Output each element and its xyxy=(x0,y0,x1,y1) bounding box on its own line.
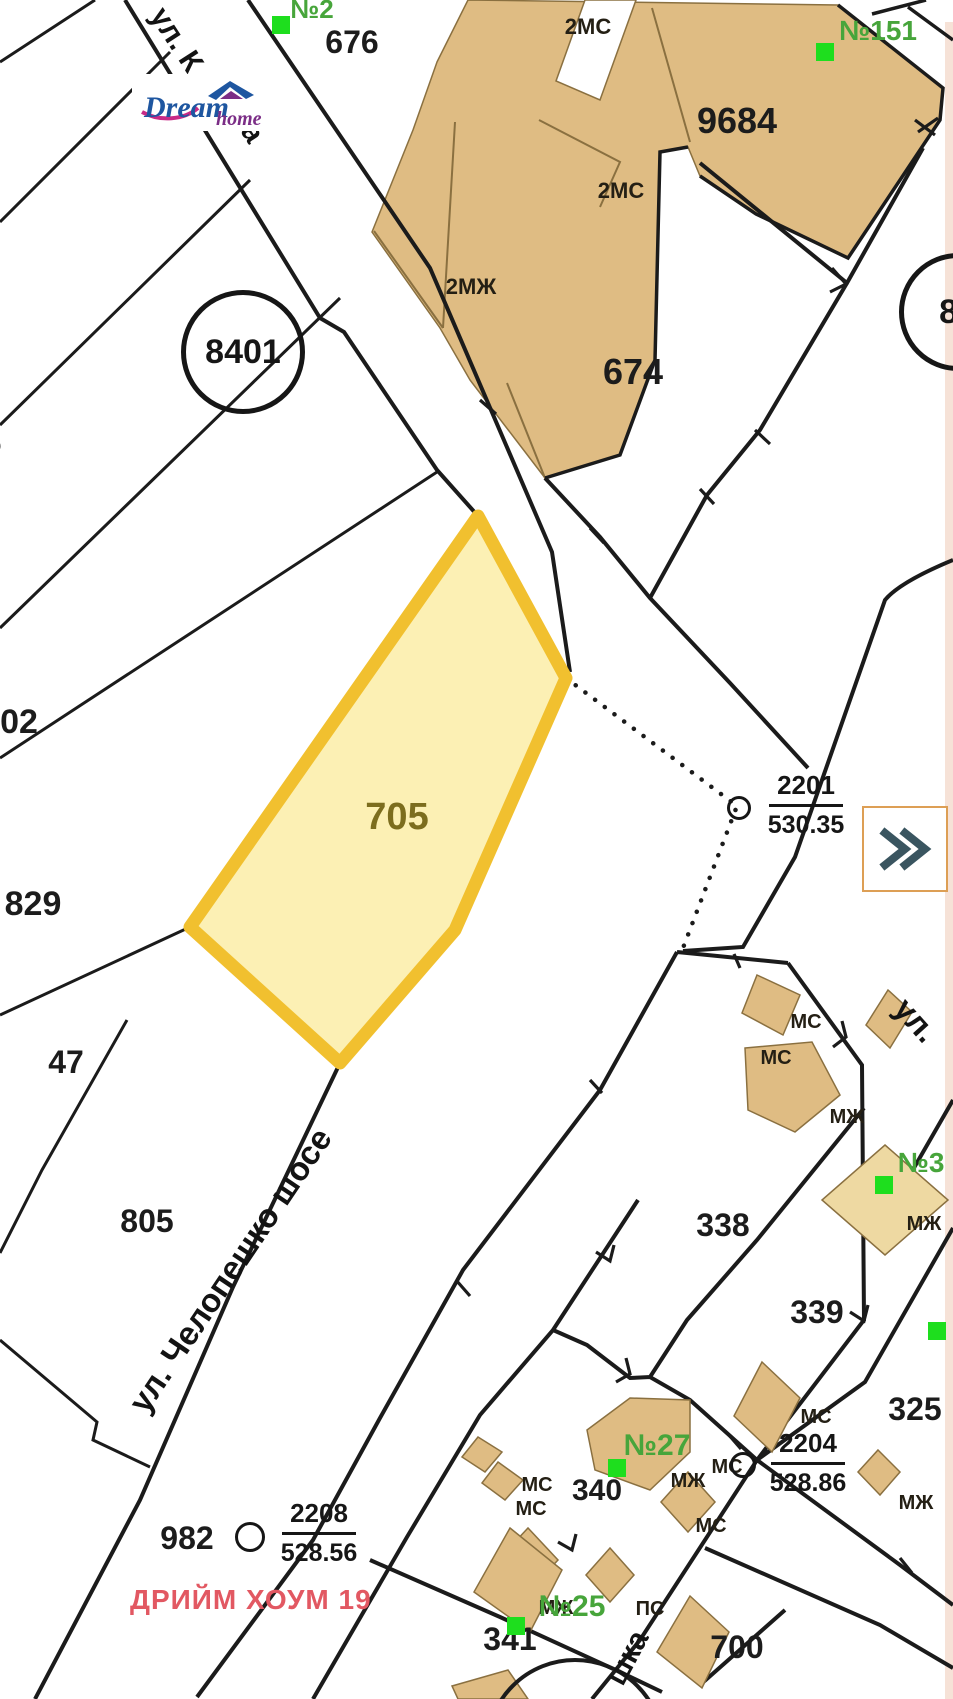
address-marker-square xyxy=(272,16,290,34)
parcel-number-label: 02 xyxy=(0,705,38,739)
address-marker-square xyxy=(875,1176,893,1194)
expand-map-button[interactable] xyxy=(862,806,948,892)
dream-home-logo-art: Dream home xyxy=(132,74,278,131)
circled-parcel-number: 8401 xyxy=(181,290,305,414)
parcel-number-label: 674 xyxy=(603,354,663,390)
survey-point-2208: 2208 528.56 xyxy=(260,1498,378,1568)
survey-point-number: 2208 xyxy=(282,1498,356,1535)
double-chevron-right-icon xyxy=(877,827,933,871)
survey-point-2204: 2204 528.86 xyxy=(744,1428,872,1498)
parcel-number-label: 829 xyxy=(5,887,62,921)
parcel-number-label: 805 xyxy=(120,1205,173,1237)
building-type-label: МС xyxy=(515,1499,546,1519)
survey-point-2201: 2201 530.35 xyxy=(741,770,871,840)
building-type-label: 2МЖ xyxy=(446,276,496,298)
parcel-number-label: 676 xyxy=(325,26,378,58)
building-type-label: ПС xyxy=(636,1599,665,1619)
parcel-number-label: 5 xyxy=(0,429,1,459)
address-marker-label: №151 xyxy=(839,17,917,45)
building-type-label: МЖ xyxy=(830,1107,865,1127)
survey-point-elevation: 530.35 xyxy=(741,807,871,840)
address-marker-label: №25 xyxy=(539,1592,606,1622)
parcel-number-label: 9684 xyxy=(697,103,777,139)
address-marker-label: №27 xyxy=(624,1431,691,1461)
building-type-label: МЖ xyxy=(899,1493,934,1513)
address-marker-square xyxy=(816,43,834,61)
survey-point-number: 2204 xyxy=(771,1428,845,1465)
building-type-label: МЖ xyxy=(671,1471,706,1491)
cadastral-map-viewer: 6769684674028294780533833932534034170098… xyxy=(0,0,953,1699)
parcel-number-label: 339 xyxy=(790,1296,843,1328)
logo-word-home: home xyxy=(216,108,262,130)
building-type-label: МС xyxy=(800,1407,831,1427)
agency-watermark: ДРИЙМ ХОУМ 19 xyxy=(130,1584,372,1616)
parcel-number-label: 325 xyxy=(888,1393,941,1425)
parcel-number-label: 47 xyxy=(48,1046,84,1078)
building-type-label: МС xyxy=(695,1516,726,1536)
address-marker-label: №3 xyxy=(898,1149,945,1177)
buildings-bottom-right xyxy=(452,975,912,1699)
address-marker-label: №2 xyxy=(290,0,333,22)
parcel-number-label: 338 xyxy=(696,1209,749,1241)
parcel-number-label: 340 xyxy=(572,1476,622,1506)
address-marker-square xyxy=(507,1617,525,1635)
building-type-label: 2МС xyxy=(598,180,644,202)
building-type-label: МЖ xyxy=(907,1214,942,1234)
address-marker-square xyxy=(928,1322,946,1340)
building-type-label: МС xyxy=(760,1048,791,1068)
parcel-number-label: 982 xyxy=(160,1522,213,1554)
highlighted-parcel-number: 705 xyxy=(365,798,428,836)
building-type-label: МС xyxy=(790,1012,821,1032)
survey-point-number: 2201 xyxy=(769,770,843,807)
dream-home-logo: Dream home xyxy=(132,74,278,131)
survey-point-elevation: 528.86 xyxy=(744,1465,872,1498)
dotted-boundary-line xyxy=(566,678,737,948)
survey-point-elevation: 528.56 xyxy=(260,1535,378,1568)
building-type-label: МС xyxy=(521,1475,552,1495)
building-type-label: 2МС xyxy=(565,16,611,38)
parcel-number-label: 700 xyxy=(710,1631,763,1663)
